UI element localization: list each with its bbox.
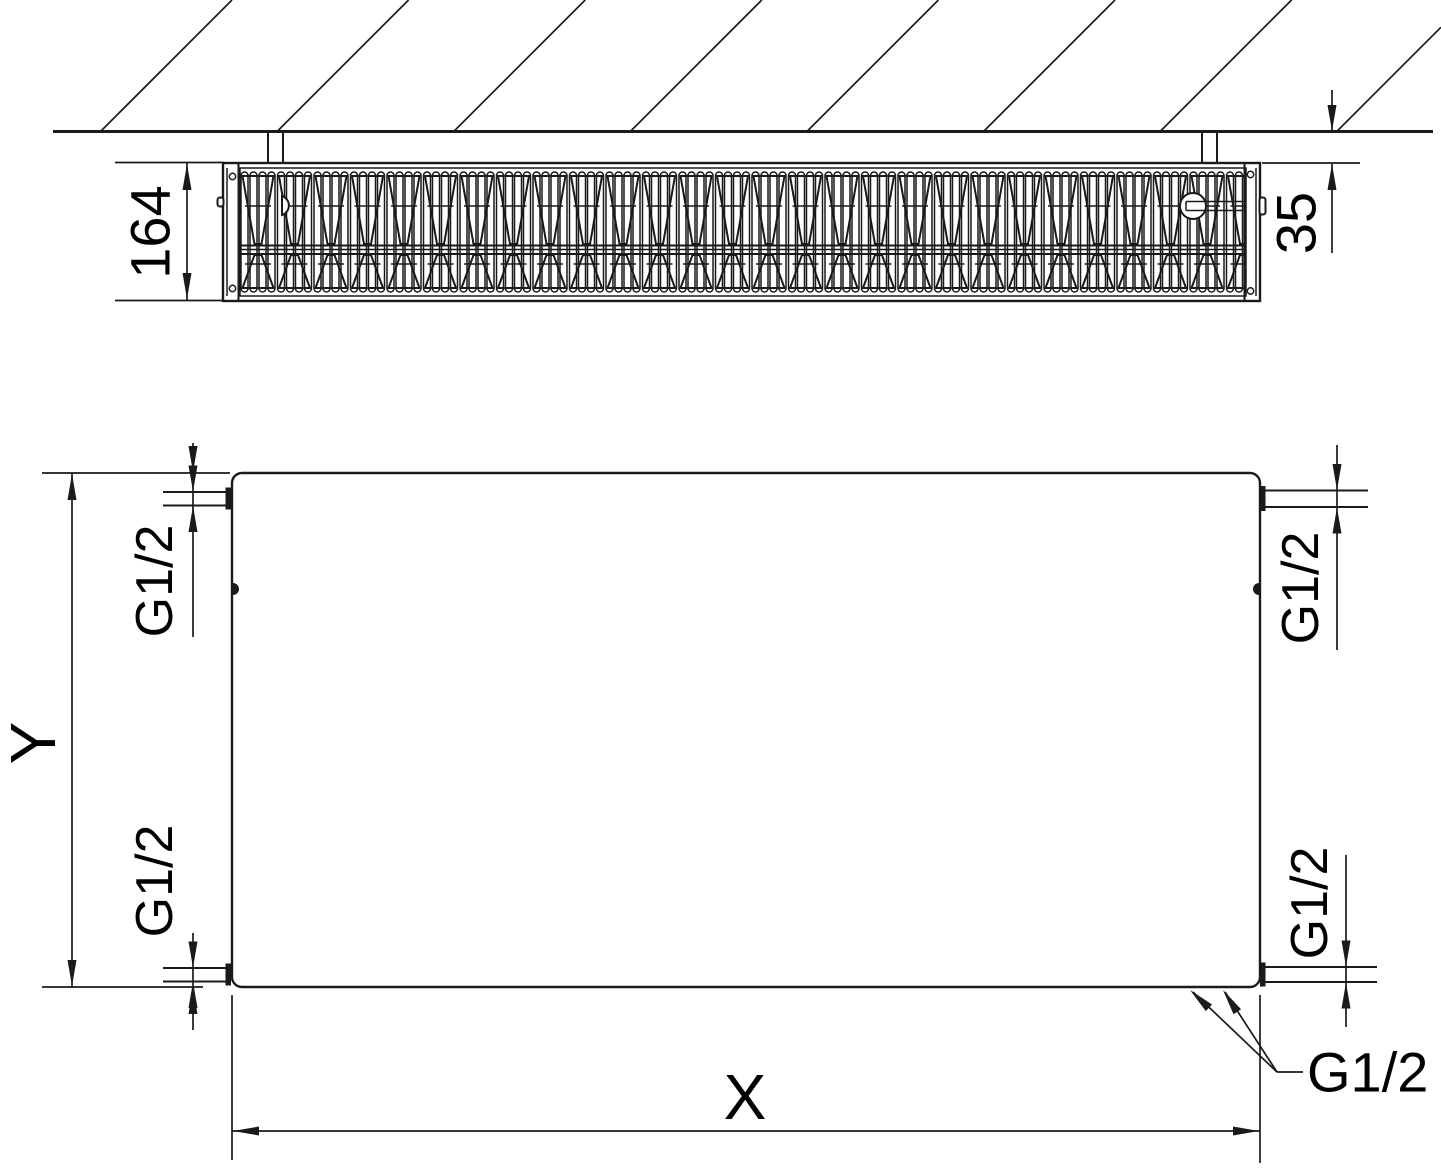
connection-stub-bottom-right xyxy=(1260,963,1377,987)
connection-stub-top-left xyxy=(163,488,231,510)
left-plug-detail xyxy=(282,196,289,215)
radiator-front-panel xyxy=(232,473,1260,987)
thread-label-bottom-pair: G1/2 xyxy=(1307,1041,1428,1104)
connection-stub-top-right xyxy=(1260,486,1368,511)
thread-label-top-right: G1/2 xyxy=(1272,532,1330,645)
left-side-tab xyxy=(218,198,224,207)
radiator-top-view xyxy=(218,163,1266,301)
screw-icon xyxy=(1247,171,1253,177)
dimension-thread-bottom-left: G1/2 xyxy=(126,825,198,1030)
technical-drawing-page: 164 35 xyxy=(0,0,1441,1171)
dimension-wall-distance-35: 35 xyxy=(1262,90,1360,254)
top-view: 164 35 xyxy=(53,0,1441,301)
dimension-depth-164: 164 xyxy=(115,163,224,301)
screw-icon xyxy=(229,173,235,179)
thread-label-bottom-left: G1/2 xyxy=(126,825,184,938)
connection-stub-bottom-left xyxy=(163,964,231,986)
wall-hatching xyxy=(100,0,1441,132)
dimension-width-x: X xyxy=(232,995,1260,1163)
left-seam-mark xyxy=(233,583,239,595)
dimension-height-y: Y xyxy=(0,473,230,987)
convector-fin-grille xyxy=(240,168,1246,296)
thread-label-top-left: G1/2 xyxy=(126,525,184,638)
dimension-thread-bottom-right: G1/2 xyxy=(1281,847,1351,1027)
wall-section xyxy=(53,0,1441,132)
thread-label-bottom-right: G1/2 xyxy=(1281,847,1339,960)
radiator-technical-drawing: 164 35 xyxy=(0,0,1441,1171)
wall-distance-dimension-label: 35 xyxy=(1265,192,1328,254)
screw-icon xyxy=(1247,288,1253,294)
dimension-thread-top-right: G1/2 xyxy=(1272,445,1342,650)
leader-thread-bottom-pair: G1/2 xyxy=(1190,990,1428,1104)
depth-dimension-label: 164 xyxy=(119,185,182,278)
width-dimension-label: X xyxy=(724,1061,767,1133)
right-seam-mark xyxy=(1253,583,1259,595)
screw-icon xyxy=(229,285,235,291)
height-dimension-label: Y xyxy=(0,722,69,765)
front-view: Y X G1/2 G1/2 xyxy=(0,443,1428,1163)
mounting-brackets xyxy=(268,132,1217,164)
